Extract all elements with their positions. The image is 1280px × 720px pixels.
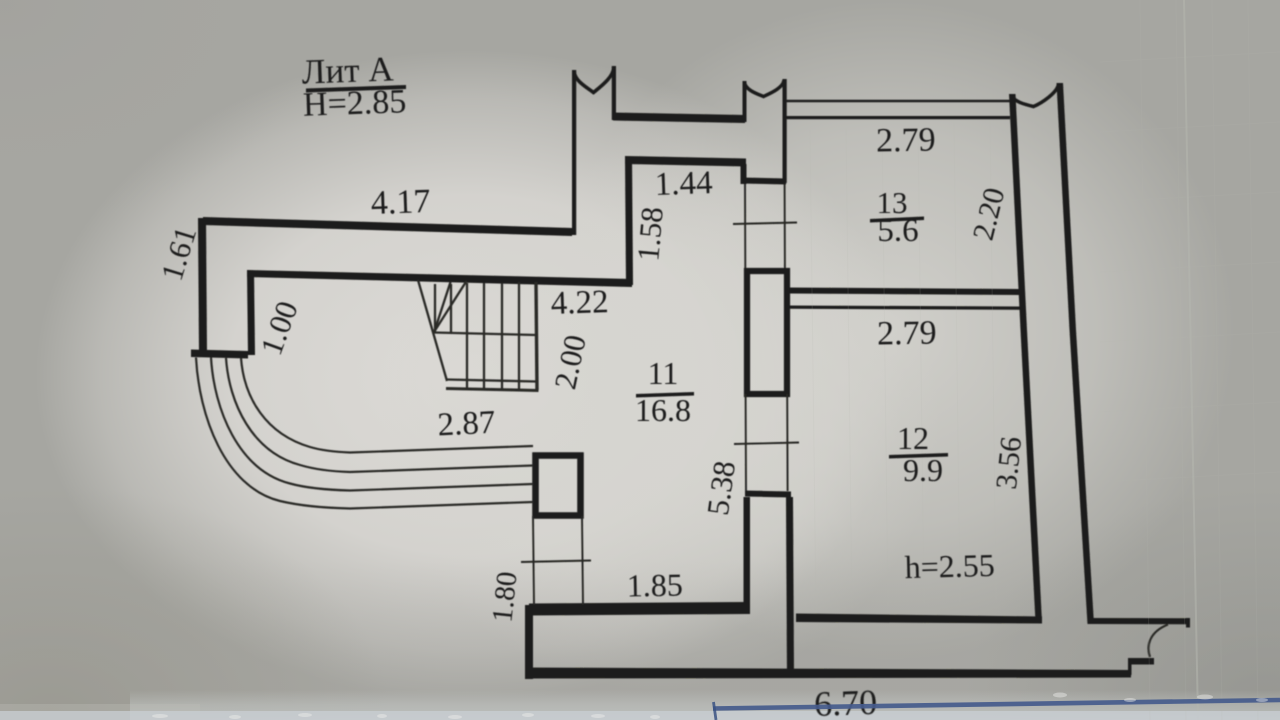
svg-text:2.79: 2.79 bbox=[877, 314, 937, 352]
svg-text:1.80: 1.80 bbox=[486, 570, 523, 624]
svg-text:H=2.85: H=2.85 bbox=[302, 83, 406, 124]
svg-text:h=2.55: h=2.55 bbox=[904, 547, 995, 585]
svg-text:2.87: 2.87 bbox=[437, 405, 497, 444]
svg-text:1.85: 1.85 bbox=[626, 567, 683, 604]
svg-text:2.79: 2.79 bbox=[876, 121, 936, 159]
svg-text:5.6: 5.6 bbox=[877, 213, 918, 249]
svg-text:1.58: 1.58 bbox=[630, 205, 670, 262]
svg-text:9.9: 9.9 bbox=[903, 452, 943, 488]
svg-text:16.8: 16.8 bbox=[635, 392, 691, 428]
svg-text:6.70: 6.70 bbox=[813, 682, 877, 720]
svg-text:11: 11 bbox=[648, 355, 679, 391]
svg-text:5.38: 5.38 bbox=[700, 459, 742, 518]
svg-text:4.17: 4.17 bbox=[370, 183, 431, 222]
svg-text:3.56: 3.56 bbox=[990, 435, 1028, 491]
svg-text:12: 12 bbox=[897, 420, 929, 456]
svg-text:1.44: 1.44 bbox=[654, 165, 713, 203]
svg-text:4.22: 4.22 bbox=[550, 284, 609, 322]
